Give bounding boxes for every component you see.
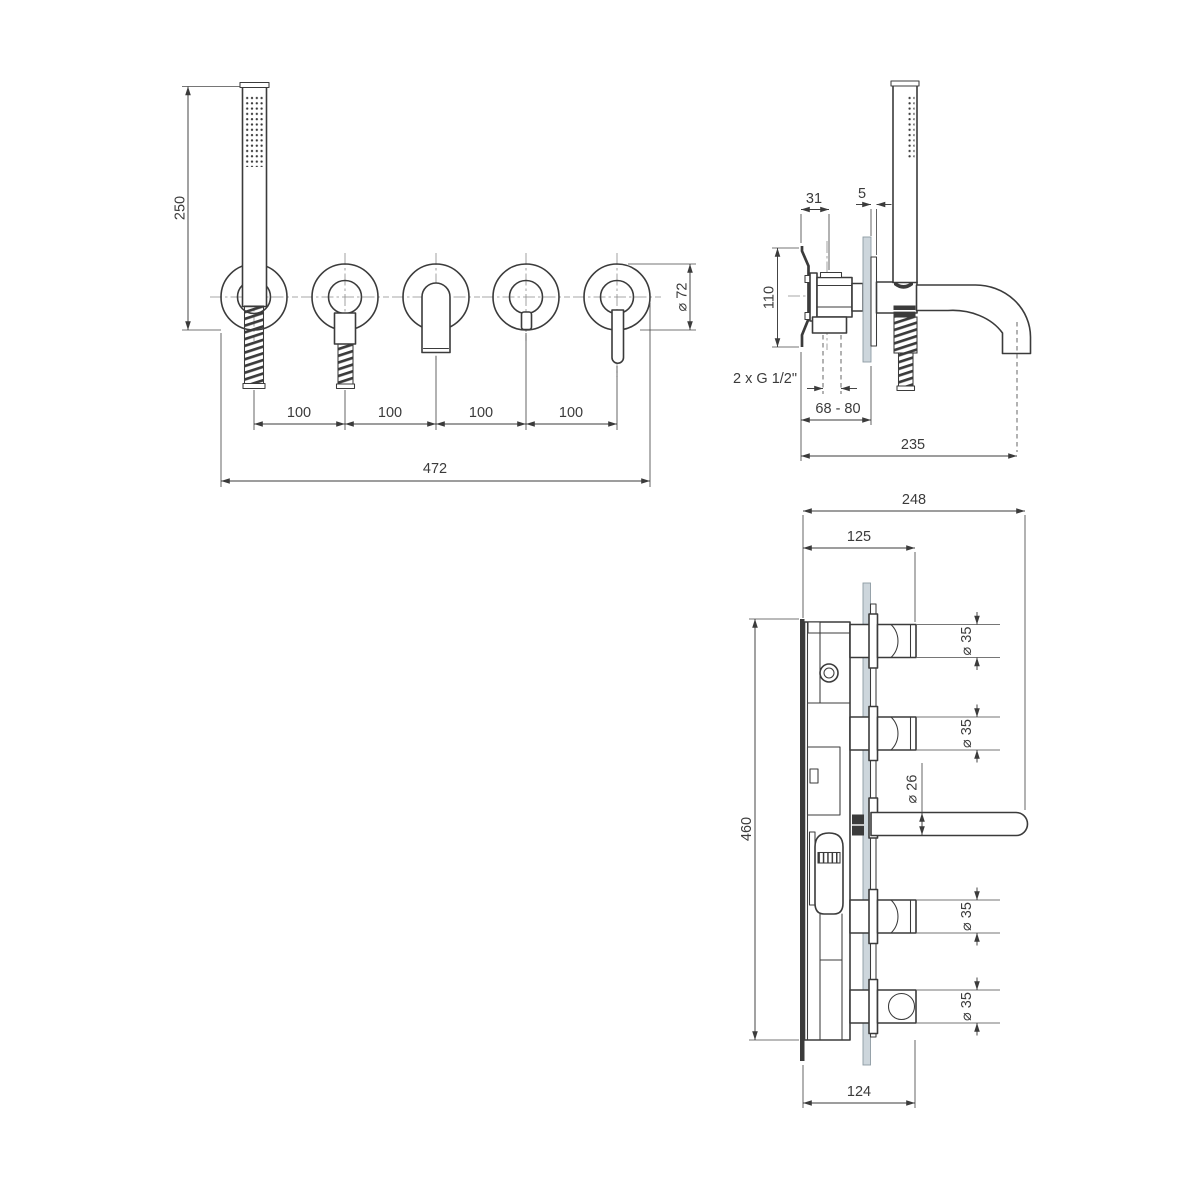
dim-124-label: 124 xyxy=(847,1084,871,1100)
technical-drawing-canvas: 250 100 100 100 100 472 ⌀ 72 xyxy=(0,0,1200,1200)
hose-1-end xyxy=(243,384,265,389)
handle-3-section xyxy=(850,890,916,944)
trim-plate-side xyxy=(871,257,877,346)
top-port xyxy=(821,273,842,278)
dim-dia35-2: ⌀ 35 xyxy=(917,705,1000,763)
drawing-svg: 250 100 100 100 100 472 ⌀ 72 xyxy=(0,0,1200,1200)
concealed-valve-body xyxy=(805,622,865,1040)
thread-label: 2 x G 1/2" xyxy=(733,371,797,387)
wall-connector xyxy=(852,284,863,312)
dim-dia35-3-label: ⌀ 35 xyxy=(959,902,975,931)
dim-250: 250 xyxy=(172,87,240,331)
dim-124: 124 xyxy=(803,1040,915,1108)
section-view: 248 125 460 124 ⌀ 35 xyxy=(739,492,1028,1108)
dim-100-label-2: 100 xyxy=(378,405,402,421)
spout-side xyxy=(917,285,1031,354)
handshower-side xyxy=(891,81,919,283)
dim-235-label: 235 xyxy=(901,437,925,453)
cartridge-adjuster xyxy=(818,853,840,864)
dim-472-label: 472 xyxy=(423,461,447,477)
dim-110: 110 xyxy=(761,248,799,347)
dim-250-label: 250 xyxy=(172,196,188,220)
dim-thread: 2 x G 1/2" xyxy=(733,371,857,389)
mounting-bracket xyxy=(802,246,809,347)
handshower-front xyxy=(240,83,269,389)
shower-hose-2 xyxy=(338,344,353,385)
diverter-stub-front xyxy=(522,312,532,330)
dim-dia35-1: ⌀ 35 xyxy=(917,612,1000,670)
dim-dia35-4: ⌀ 35 xyxy=(917,978,1000,1036)
dim-68-80-label: 68 - 80 xyxy=(815,401,860,417)
dim-31-label: 31 xyxy=(806,191,822,207)
dim-100-label-4: 100 xyxy=(559,405,583,421)
spout-front xyxy=(422,283,450,353)
handshower-cap xyxy=(240,83,269,88)
dim-125-label: 125 xyxy=(847,529,871,545)
side-valve-body xyxy=(805,273,863,395)
front-view: 250 100 100 100 100 472 ⌀ 72 xyxy=(172,83,696,488)
handle-4-section xyxy=(850,980,916,1034)
dim-235: 235 xyxy=(801,425,1017,461)
dim-5-label: 5 xyxy=(858,186,866,202)
handshower-spray-face xyxy=(246,95,264,167)
dim-248-label: 248 xyxy=(902,492,926,508)
dim-460: 460 xyxy=(739,619,799,1040)
lever-handle-front xyxy=(612,310,624,363)
bottom-port xyxy=(813,317,847,333)
hidden-port-lines xyxy=(823,335,841,394)
dim-dia35-4-label: ⌀ 35 xyxy=(959,992,975,1021)
shower-hose-side xyxy=(894,306,918,391)
dim-dia35-3: ⌀ 35 xyxy=(917,888,1000,946)
handle-1-section xyxy=(850,614,916,668)
wall-plate-side xyxy=(863,237,871,362)
shower-hose-1 xyxy=(245,306,264,384)
dim-dia72-label: ⌀ 72 xyxy=(674,283,690,312)
handle-2-section xyxy=(850,707,916,761)
dim-460-label: 460 xyxy=(739,817,755,841)
handle-4-dial xyxy=(889,994,915,1020)
hose-outlet-front xyxy=(335,313,356,389)
dim-110-label: 110 xyxy=(761,286,777,309)
spout-section xyxy=(869,798,1028,838)
dim-100-label-1: 100 xyxy=(287,405,311,421)
handshower-spray-side xyxy=(908,95,915,158)
hose-outlet-body xyxy=(335,313,356,344)
dim-dia35-2-label: ⌀ 35 xyxy=(959,719,975,748)
dim-5: 5 xyxy=(856,186,892,255)
side-view: 31 5 110 2 x G 1/2" 68 - 80 xyxy=(733,81,1030,461)
cartridge xyxy=(815,833,843,914)
dim-dia26-label: ⌀ 26 xyxy=(904,775,920,804)
hose-2-end xyxy=(337,384,355,389)
dim-dia35-1-label: ⌀ 35 xyxy=(959,627,975,656)
dim-125: 125 xyxy=(803,529,915,622)
dim-100-label-3: 100 xyxy=(469,405,493,421)
